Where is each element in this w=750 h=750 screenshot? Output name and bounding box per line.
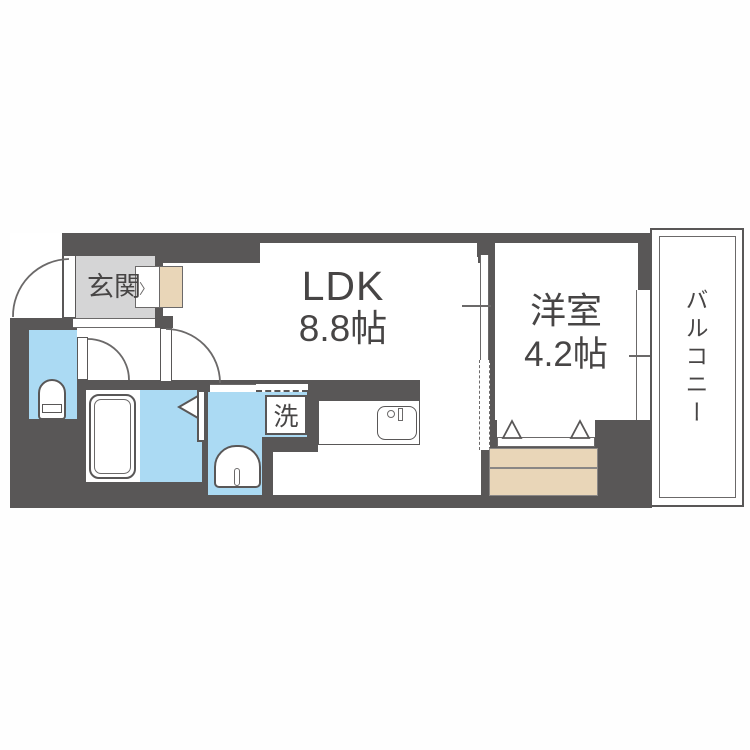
hanging-wall-opening: [256, 382, 308, 392]
bedroom-label: 洋室: [530, 293, 602, 329]
toilet-door-leaf: [77, 337, 88, 380]
sliding-door-track: [480, 255, 489, 360]
shoe-cabinet: [159, 266, 183, 308]
bathtub-inner-icon: [94, 399, 131, 474]
entrance-porch: [10, 233, 62, 318]
closet-cabinet: [489, 448, 598, 496]
entrance-door-leaf: [63, 255, 76, 318]
bedroom-size-label: 4.2帖: [524, 337, 608, 372]
ldk-size-label: 8.8帖: [299, 310, 387, 347]
genkan-wall-stub: [155, 316, 173, 328]
toilet-icon: [38, 379, 66, 420]
sliding-door-tick: [462, 305, 491, 307]
kitchen-sink-icon: [377, 406, 417, 440]
toilet-seat-icon: [42, 404, 62, 413]
ldk-door-leaf: [160, 328, 172, 382]
bath-folding-door: [197, 390, 206, 442]
ldk-floor-top: [260, 243, 478, 265]
kitchen-faucet-lever-icon: [398, 408, 403, 421]
washbasin-faucet-icon: [234, 468, 240, 486]
genkan-step: [73, 318, 155, 328]
kitchen-faucet-icon: [387, 410, 395, 418]
floor-plan: 洗 玄関 〉 LDK 8.8帖 洋室 4.2帖 バルコニー: [0, 0, 750, 750]
bedroom-floor: [495, 243, 638, 420]
washer-box: 洗: [265, 395, 307, 435]
balcony-label: バルコニー: [683, 288, 706, 428]
sliding-door-panel: [479, 360, 490, 450]
closet-divider: [490, 467, 597, 469]
ldk-label: LDK: [302, 266, 385, 307]
hallway-floor: [77, 328, 163, 380]
closet-door-rail: [497, 437, 595, 447]
genkan-label: 玄関: [87, 274, 141, 301]
kitchen-wall: [305, 380, 420, 400]
genkan-step-arrow: 〉: [139, 282, 153, 296]
washroom-wall-v: [262, 437, 273, 497]
washer-label: 洗: [273, 397, 298, 433]
ldk-floor-right: [420, 380, 481, 450]
